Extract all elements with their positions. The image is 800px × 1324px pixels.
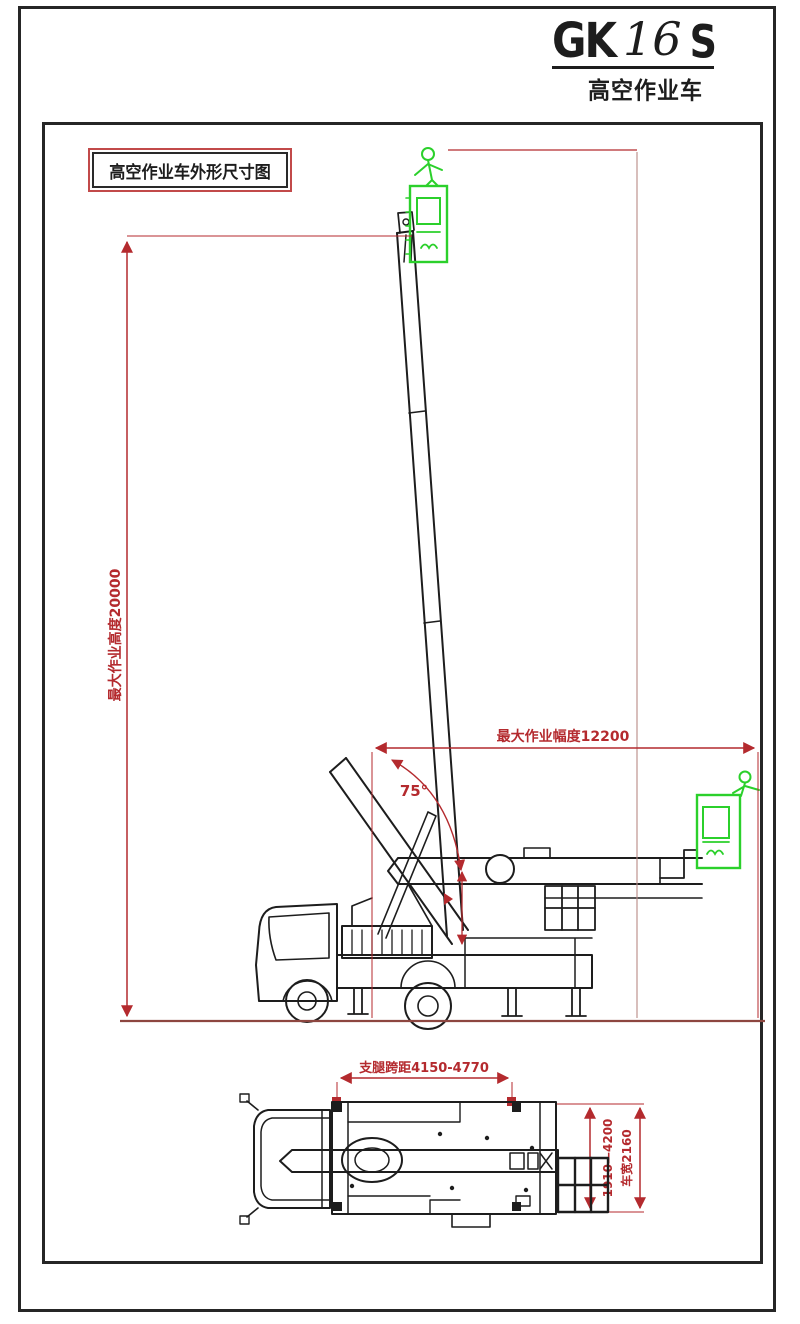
- top-view-cab: [254, 1110, 330, 1208]
- label-vehicle-width: 车宽2160: [619, 1129, 634, 1186]
- dimension-labels: 最大作业高度20000 最大作业幅度12200 75° 支腿跨距4150-477…: [107, 568, 634, 1197]
- body-marks: [350, 1132, 534, 1192]
- side-view-truck: [256, 212, 702, 1029]
- drawing-canvas: 最大作业高度20000 最大作业幅度12200 75° 支腿跨距4150-477…: [0, 0, 800, 1324]
- dimension-lines-side: [120, 150, 765, 1021]
- dimension-lines-top: [332, 1078, 644, 1212]
- label-boom-angle: 75°: [400, 782, 428, 800]
- label-max-height: 最大作业高度20000: [107, 568, 124, 701]
- right-basket: [697, 772, 759, 869]
- top-view-body: [332, 1102, 556, 1214]
- outrigger-jacks: [348, 988, 586, 1016]
- basket-logo: [421, 245, 437, 249]
- basket-rest-grid: [545, 886, 595, 930]
- basket-logo: [707, 851, 723, 855]
- turntable: [342, 1138, 402, 1182]
- turret: [342, 926, 432, 958]
- label-outreach: 最大作业幅度12200: [497, 728, 630, 745]
- top-view-truck: [240, 1094, 608, 1227]
- operator-figure-right: [733, 772, 759, 797]
- operator-figure-top: [415, 148, 442, 186]
- drawing-page: { "header": { "model_prefix": "GK", "mod…: [0, 0, 800, 1324]
- cab-window: [269, 913, 329, 960]
- telescopic-boom: [397, 212, 463, 936]
- label-outrigger-span: 支腿跨距4150-4770: [358, 1060, 489, 1076]
